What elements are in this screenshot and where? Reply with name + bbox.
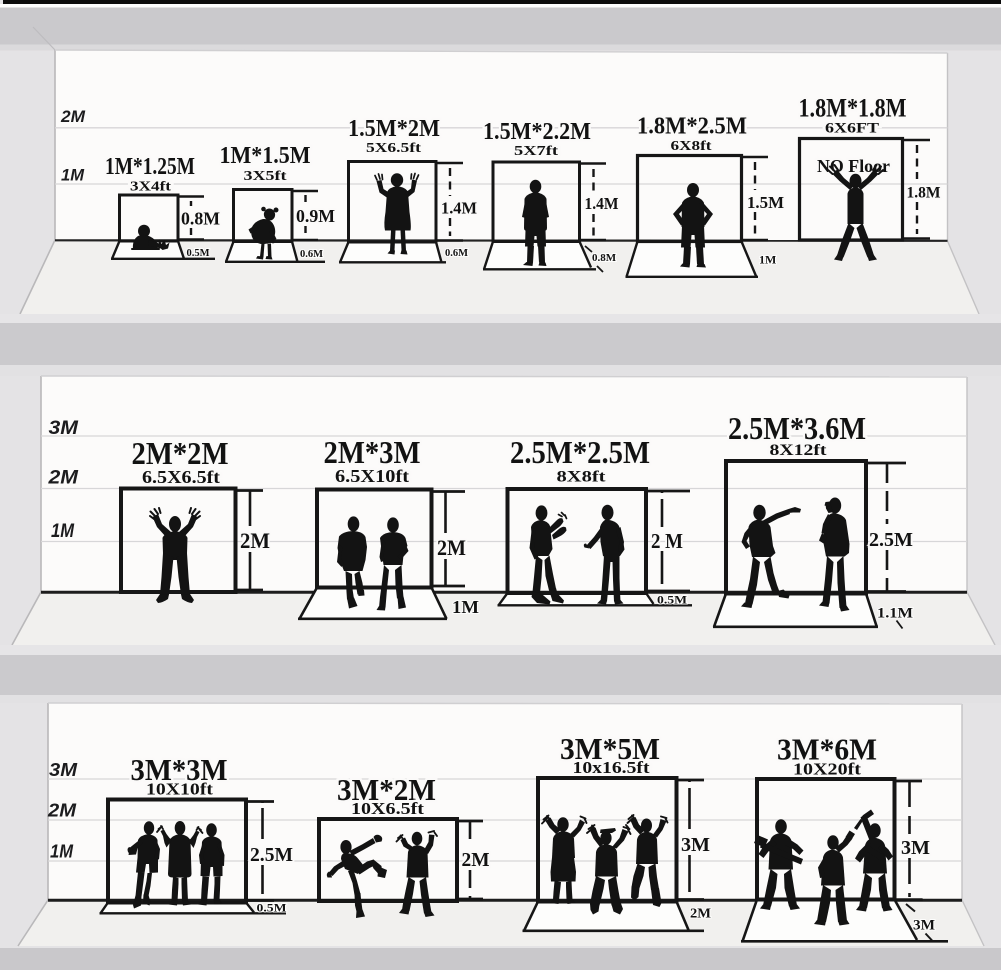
svg-text:3M: 3M (49, 418, 80, 439)
svg-text:1.8M*1.8M: 1.8M*1.8M (799, 94, 907, 123)
svg-text:3X4ft: 3X4ft (130, 180, 171, 195)
svg-text:0.5M: 0.5M (187, 248, 210, 259)
svg-text:5X7ft: 5X7ft (514, 144, 558, 159)
svg-text:2M: 2M (462, 849, 490, 871)
svg-text:1M*1.5M: 1M*1.5M (220, 143, 311, 169)
svg-text:10X6.5ft: 10X6.5ft (351, 799, 424, 818)
svg-text:8X8ft: 8X8ft (557, 469, 607, 486)
svg-text:1M*1.25M: 1M*1.25M (105, 154, 195, 180)
svg-text:0.8M: 0.8M (181, 209, 220, 229)
svg-text:3M: 3M (901, 837, 930, 859)
svg-text:10x16.5ft: 10x16.5ft (573, 758, 650, 777)
svg-text:2M: 2M (60, 107, 86, 126)
svg-text:1M: 1M (61, 166, 85, 185)
svg-text:1M: 1M (51, 521, 75, 542)
svg-text:2.5M*3.6M: 2.5M*3.6M (728, 410, 866, 446)
svg-text:0.5M: 0.5M (257, 901, 287, 915)
svg-text:2.5M: 2.5M (250, 844, 293, 866)
svg-text:2M*2M: 2M*2M (132, 435, 229, 471)
svg-text:0.6M: 0.6M (300, 249, 323, 260)
svg-text:10X10ft: 10X10ft (146, 780, 213, 799)
svg-text:3M: 3M (913, 918, 935, 934)
svg-text:1.5M*2M: 1.5M*2M (348, 116, 440, 142)
svg-text:2M: 2M (47, 801, 77, 821)
svg-text:8X12ft: 8X12ft (770, 442, 828, 459)
svg-text:3X5ft: 3X5ft (244, 169, 287, 184)
svg-text:2.5M: 2.5M (869, 529, 913, 551)
svg-text:2M: 2M (240, 528, 270, 553)
svg-text:1M: 1M (452, 597, 479, 617)
svg-text:1M: 1M (759, 253, 776, 267)
svg-text:0.9M: 0.9M (296, 206, 335, 226)
svg-text:1.5M*2.2M: 1.5M*2.2M (483, 119, 591, 145)
svg-text:10X20ft: 10X20ft (793, 760, 861, 779)
svg-text:5X6.5ft: 5X6.5ft (366, 141, 421, 156)
svg-text:1.8M: 1.8M (907, 185, 941, 202)
svg-text:1M: 1M (50, 842, 74, 862)
svg-text:2 M: 2 M (651, 529, 683, 553)
svg-text:3M: 3M (49, 760, 78, 780)
svg-text:1.4M: 1.4M (585, 194, 619, 213)
svg-text:2M*3M: 2M*3M (324, 434, 421, 470)
svg-text:6.5X10ft: 6.5X10ft (335, 466, 409, 486)
svg-text:1.8M*2.5M: 1.8M*2.5M (637, 114, 747, 140)
svg-text:1.1M: 1.1M (877, 606, 913, 622)
svg-text:1.5M: 1.5M (747, 193, 784, 212)
svg-text:2M: 2M (690, 907, 711, 922)
svg-text:0.6M: 0.6M (445, 248, 468, 259)
svg-text:6X8ft: 6X8ft (671, 139, 712, 154)
svg-text:2.5M*2.5M: 2.5M*2.5M (510, 434, 650, 470)
svg-text:6.5X6.5ft: 6.5X6.5ft (142, 467, 220, 487)
svg-text:0.8M: 0.8M (592, 252, 617, 264)
svg-text:2M: 2M (47, 468, 79, 489)
svg-text:2M: 2M (437, 535, 466, 560)
svg-text:0.5M: 0.5M (657, 593, 687, 607)
svg-text:3M: 3M (681, 834, 710, 856)
svg-text:1.4M: 1.4M (441, 199, 477, 218)
svg-text:6X6FT: 6X6FT (825, 121, 879, 137)
